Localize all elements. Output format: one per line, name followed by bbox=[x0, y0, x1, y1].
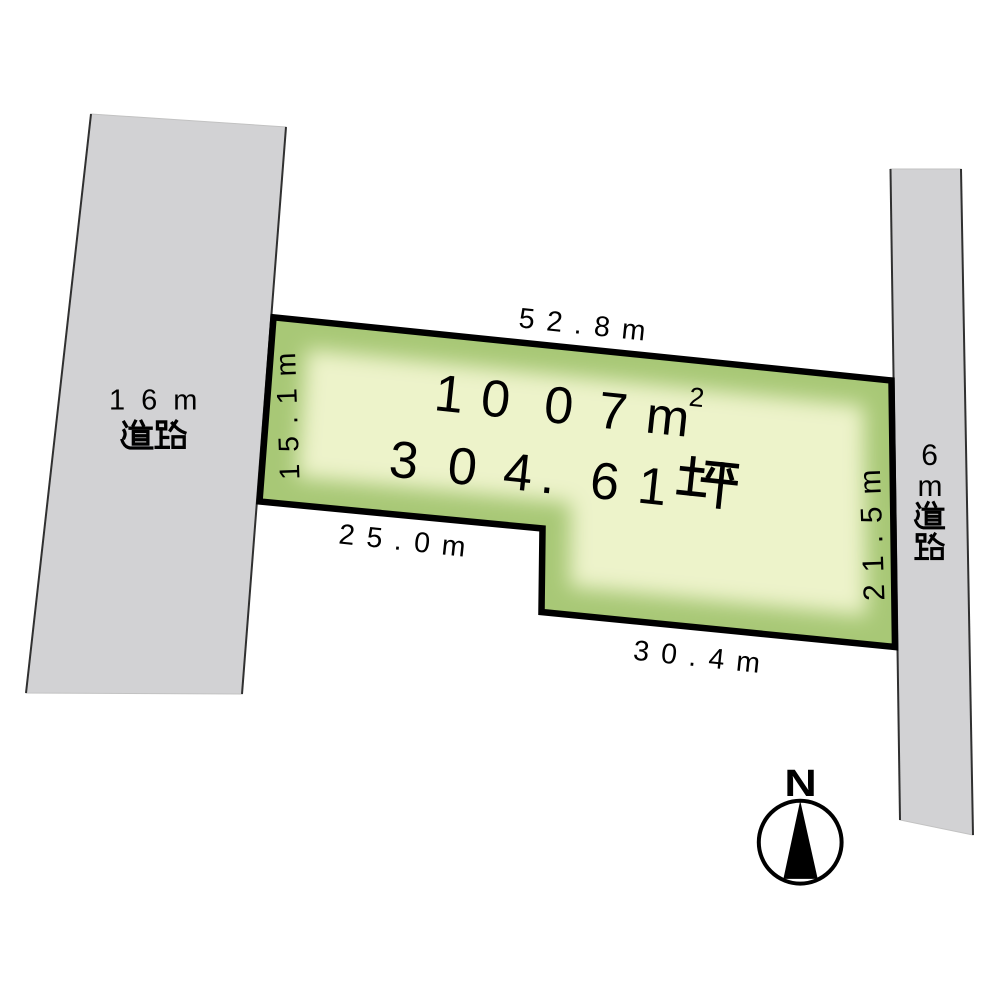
svg-text:15.1m: 15.1m bbox=[270, 340, 307, 480]
svg-text:21.5m: 21.5m bbox=[854, 457, 892, 601]
svg-text:m: m bbox=[918, 470, 943, 503]
svg-text:16m: 16m bbox=[109, 385, 213, 417]
svg-text:N: N bbox=[784, 761, 816, 804]
svg-text:25.0m: 25.0m bbox=[337, 519, 479, 565]
svg-text:30.4m: 30.4m bbox=[632, 635, 774, 681]
svg-text:6: 6 bbox=[921, 439, 938, 472]
svg-text:2: 2 bbox=[688, 382, 706, 413]
